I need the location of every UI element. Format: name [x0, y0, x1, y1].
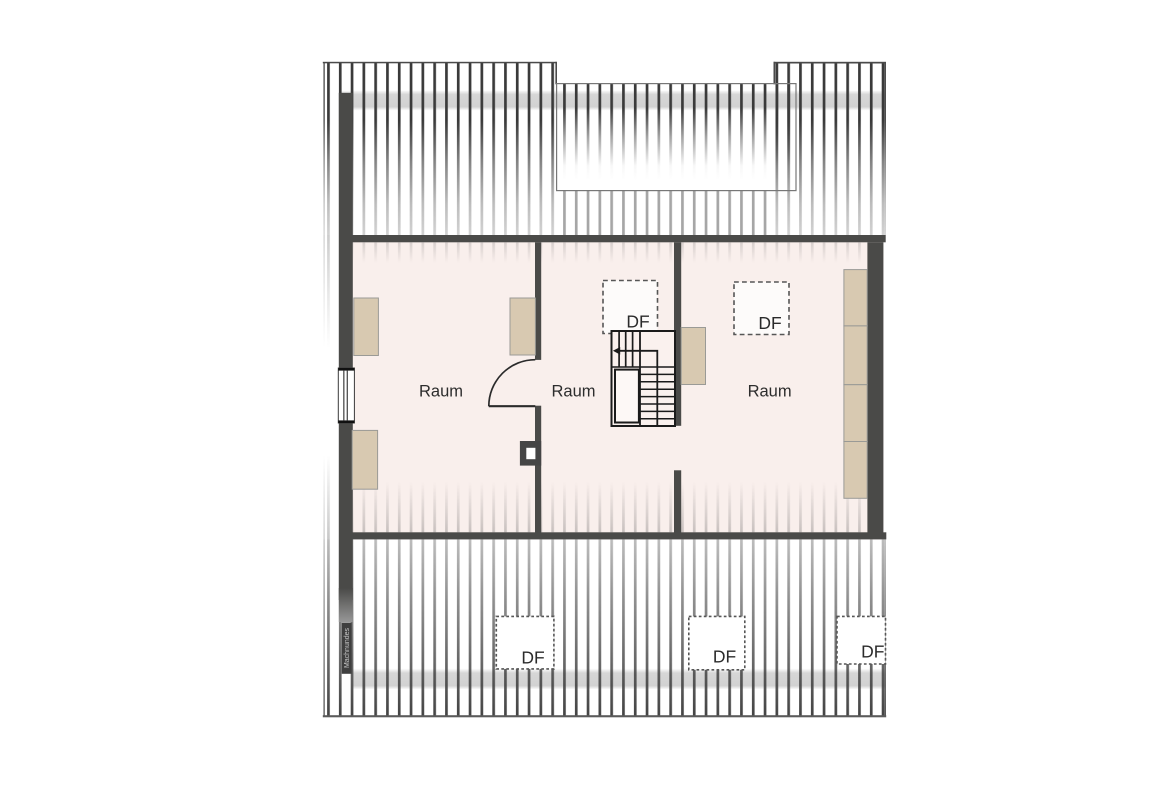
svg-text:DF: DF — [713, 647, 736, 667]
svg-text:DF: DF — [521, 648, 544, 668]
svg-text:DF: DF — [626, 311, 649, 331]
svg-text:Raum: Raum — [748, 382, 792, 400]
svg-text:DF: DF — [758, 313, 781, 333]
svg-text:DF: DF — [861, 641, 884, 661]
svg-text:Raum: Raum — [551, 382, 595, 400]
svg-text:Machnundes: Machnundes — [344, 627, 351, 668]
svg-text:Raum: Raum — [419, 382, 463, 400]
